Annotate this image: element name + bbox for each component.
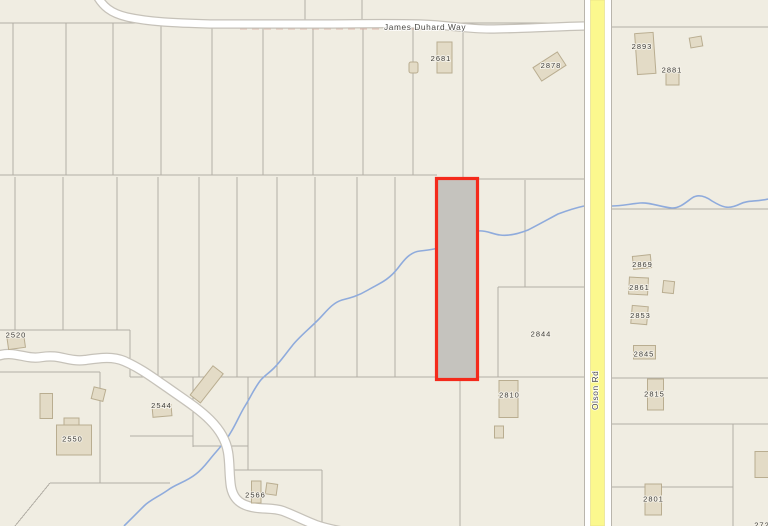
road-olson-rd — [585, 0, 612, 526]
building — [662, 281, 674, 294]
building — [689, 36, 703, 48]
parcel-label-2881: 2881 — [662, 66, 683, 75]
parcel-label-2853: 2853 — [630, 311, 651, 320]
parcel-label-2815: 2815 — [644, 390, 665, 399]
building — [265, 483, 277, 495]
road-label-olson-rd: Olson Rd — [590, 371, 600, 410]
parcel-label-2878: 2878 — [541, 61, 562, 70]
parcel-label-2844: 2844 — [531, 330, 552, 339]
building — [495, 426, 504, 438]
parcel-label-2520: 2520 — [6, 331, 27, 340]
parcel-label-2810: 2810 — [499, 391, 520, 400]
parcel-label-2681: 2681 — [431, 54, 452, 63]
parcel-label-2550: 2550 — [62, 435, 83, 444]
parcel-label-2893: 2893 — [632, 42, 653, 51]
parcel-label-partial: 272 — [754, 521, 768, 526]
building — [755, 452, 768, 478]
parcel-label-2544: 2544 — [151, 401, 172, 410]
parcel-map[interactable]: James Duhard Way Olson Rd 2681 2878 2893… — [0, 0, 768, 526]
building-2893 — [635, 32, 656, 74]
parcel-label-2801: 2801 — [643, 495, 664, 504]
parcel-label-2845: 2845 — [634, 350, 655, 359]
road-label-james-duhard-way: James Duhard Way — [384, 22, 466, 32]
parcel-label-2566: 2566 — [245, 491, 266, 500]
selected-parcel[interactable] — [437, 179, 478, 380]
building — [409, 62, 418, 73]
parcel-label-2869: 2869 — [632, 260, 653, 269]
building — [91, 387, 106, 402]
building — [40, 394, 53, 419]
parcel-label-2861: 2861 — [629, 283, 650, 292]
